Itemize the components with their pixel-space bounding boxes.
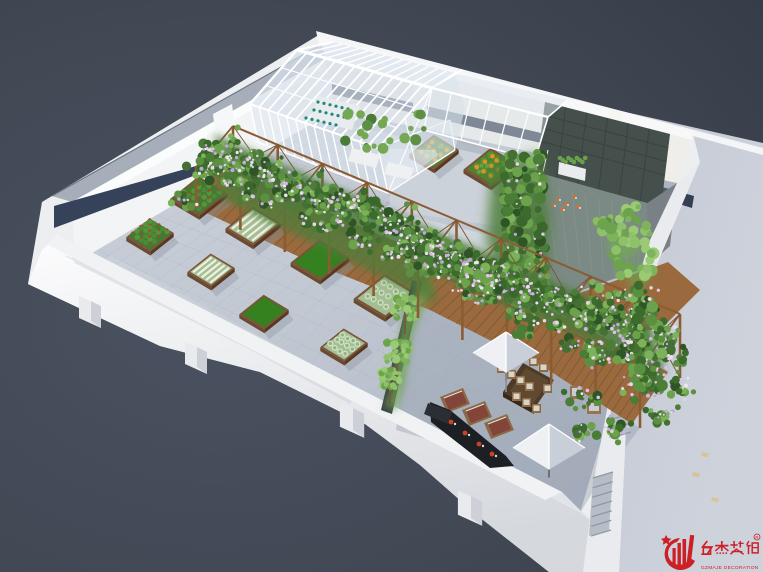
svg-text:R: R <box>755 535 758 540</box>
svg-text:GZMAJE DECORATION: GZMAJE DECORATION <box>701 565 759 571</box>
